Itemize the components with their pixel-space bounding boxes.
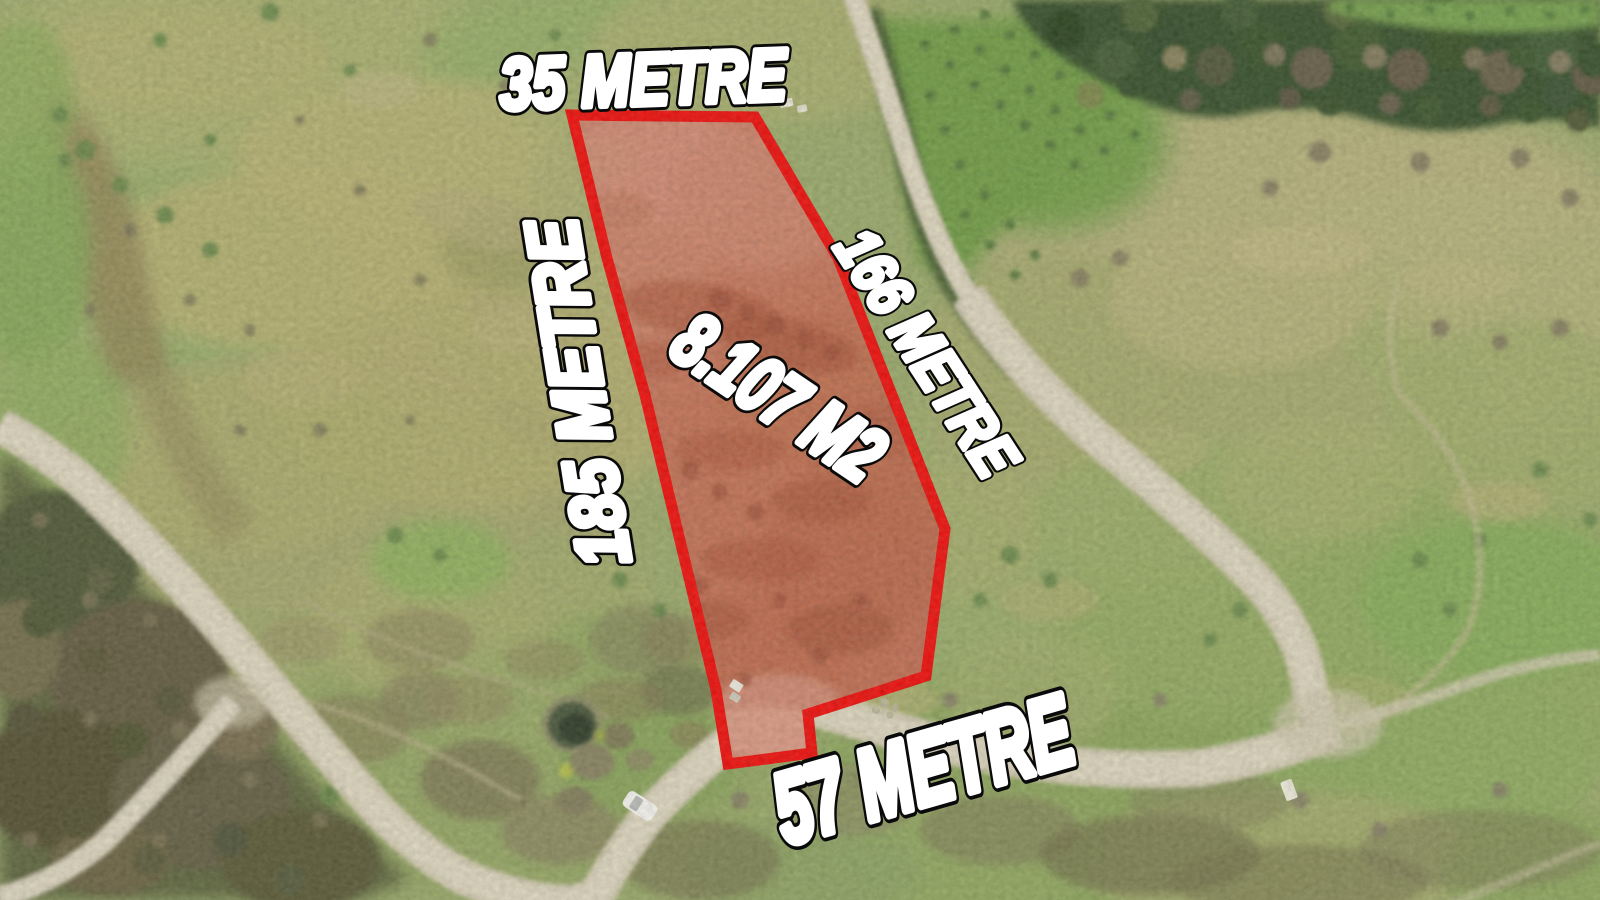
svg-text:35 METRE: 35 METRE — [498, 34, 790, 125]
